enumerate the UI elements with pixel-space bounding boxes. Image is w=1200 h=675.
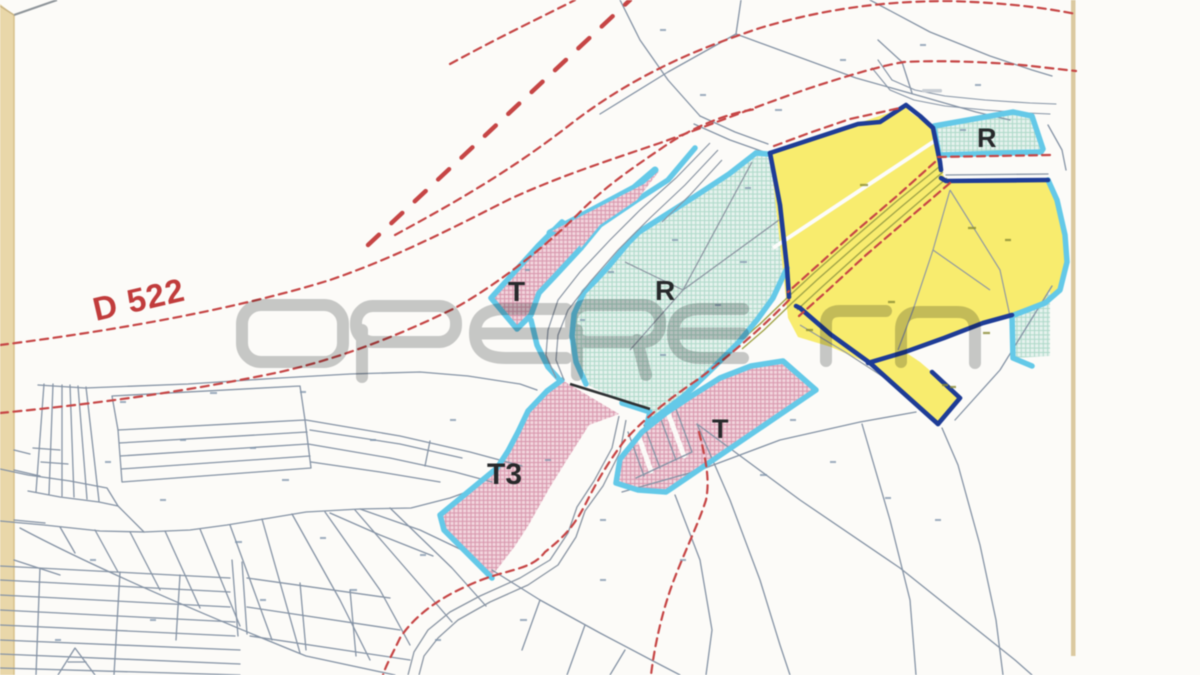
svg-text:R: R (977, 123, 997, 153)
svg-text:R: R (655, 275, 675, 306)
svg-text:T: T (508, 276, 525, 307)
svg-text:T3: T3 (487, 458, 522, 491)
svg-text:T: T (712, 414, 729, 444)
